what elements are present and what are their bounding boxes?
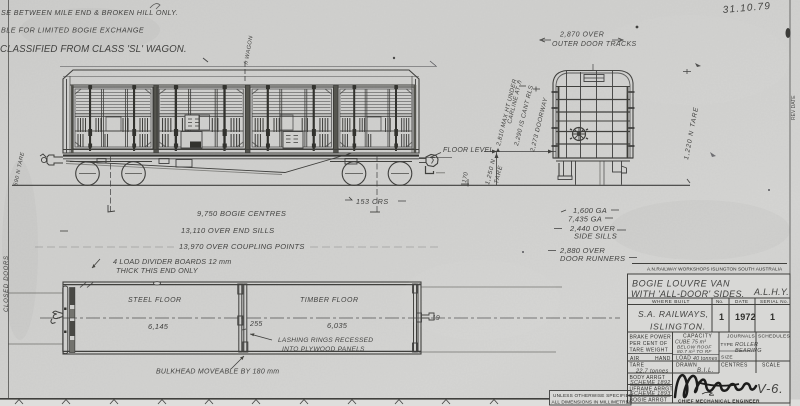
svg-text:A.L.H.Y.: A.L.H.Y. — [753, 287, 789, 297]
svg-text:JOURNALS: JOURNALS — [727, 334, 755, 340]
svg-text:A.N.RAILWAY WORKSHOPS ISLINGT: A.N.RAILWAY WORKSHOPS ISLINGTON SOUTH AU… — [647, 267, 783, 272]
svg-text:BEARING: BEARING — [735, 348, 762, 354]
svg-text:SCHEME 1893: SCHEME 1893 — [630, 391, 671, 397]
svg-text:CENTRES: CENTRES — [721, 363, 748, 369]
svg-text:1972: 1972 — [735, 312, 756, 322]
svg-text:HAND: HAND — [655, 356, 671, 362]
svg-text:7,435 GA: 7,435 GA — [568, 215, 602, 224]
svg-text:6,145: 6,145 — [148, 322, 169, 331]
svg-text:9,750 BOGIE CENTRES: 9,750 BOGIE CENTRES — [197, 209, 286, 218]
svg-text:40 tonnes: 40 tonnes — [693, 356, 718, 362]
svg-text:DOOR RUNNERS: DOOR RUNNERS — [560, 254, 625, 263]
svg-text:80.7 m³ TO RF: 80.7 m³ TO RF — [677, 349, 712, 355]
svg-text:255: 255 — [249, 321, 263, 328]
svg-text:BRAKE POWER: BRAKE POWER — [630, 335, 672, 341]
svg-text:22.7 tonnes: 22.7 tonnes — [635, 369, 669, 375]
svg-text:BOGIE ARRGT: BOGIE ARRGT — [630, 398, 668, 404]
svg-text:STEEL FLOOR: STEEL FLOOR — [128, 297, 182, 304]
svg-text:BOGIE LOUVRE VAN: BOGIE LOUVRE VAN — [632, 279, 730, 289]
svg-text:CHIEF MECHANICAL ENGINEER: CHIEF MECHANICAL ENGINEER — [678, 399, 760, 405]
svg-text:No.: No. — [716, 299, 723, 304]
svg-text:REV DATE: REV DATE — [791, 95, 797, 120]
svg-text:S.A. RAILWAYS,: S.A. RAILWAYS, — [638, 309, 709, 319]
svg-text:SCALE: SCALE — [762, 363, 781, 369]
svg-text:13,970 OVER COUPLING POINTS: 13,970 OVER COUPLING POINTS — [179, 242, 305, 251]
svg-text:TYPE: TYPE — [721, 342, 734, 347]
svg-text:AIR: AIR — [630, 356, 640, 362]
svg-text:LASHING RINGS RECESSED: LASHING RINGS RECESSED — [278, 337, 373, 344]
svg-text:DRAWN: DRAWN — [676, 363, 697, 369]
svg-text:THICK THIS END ONLY: THICK THIS END ONLY — [116, 266, 199, 275]
svg-text:ISLINGTON.: ISLINGTON. — [650, 322, 706, 332]
svg-text:WHERE BUILT: WHERE BUILT — [652, 299, 690, 305]
svg-text:TARE WEIGHT: TARE WEIGHT — [630, 348, 669, 354]
svg-text:BULKHEAD MOVEABLE BY 180 mm: BULKHEAD MOVEABLE BY 180 mm — [156, 369, 279, 376]
svg-text:DATE: DATE — [735, 299, 749, 304]
svg-text:WITH 'ALL-DOOR' SIDES.: WITH 'ALL-DOOR' SIDES. — [631, 289, 745, 299]
svg-text:1: 1 — [770, 312, 775, 322]
svg-text:INTO PLYWOOD PANELS: INTO PLYWOOD PANELS — [282, 346, 365, 353]
svg-text:SERIAL No.: SERIAL No. — [760, 299, 789, 304]
svg-text:13,110 OVER END SILLS: 13,110 OVER END SILLS — [181, 226, 275, 235]
svg-text:ALL DIMENSIONS IN MILLIMETRES: ALL DIMENSIONS IN MILLIMETRES — [552, 399, 633, 404]
svg-text:V-6.: V-6. — [757, 381, 784, 396]
svg-text:4 LOAD DIVIDER BOARDS 12 m: 4 LOAD DIVIDER BOARDS 12 mm — [113, 257, 231, 266]
svg-text:153 CRS: 153 CRS — [356, 197, 389, 206]
svg-text:6,035: 6,035 — [327, 321, 348, 330]
svg-text:SCHEDULES: SCHEDULES — [758, 334, 790, 340]
svg-text:2,870 OVER: 2,870 OVER — [559, 32, 604, 39]
svg-text:LOAD: LOAD — [676, 356, 691, 362]
svg-text:UNLESS OTHERWISE SPECIFIED: UNLESS OTHERWISE SPECIFIED — [553, 393, 633, 398]
svg-text:1: 1 — [719, 312, 724, 322]
svg-text:PER CENT OF: PER CENT OF — [630, 341, 668, 347]
svg-text:TIMBER FLOOR: TIMBER FLOOR — [300, 297, 359, 304]
svg-text:FLOOR LEVEL: FLOOR LEVEL — [443, 147, 494, 154]
svg-text:SCHEME 1892: SCHEME 1892 — [630, 380, 671, 386]
svg-text:B.I.L.: B.I.L. — [697, 368, 714, 374]
svg-text:SIZE: SIZE — [721, 355, 733, 361]
